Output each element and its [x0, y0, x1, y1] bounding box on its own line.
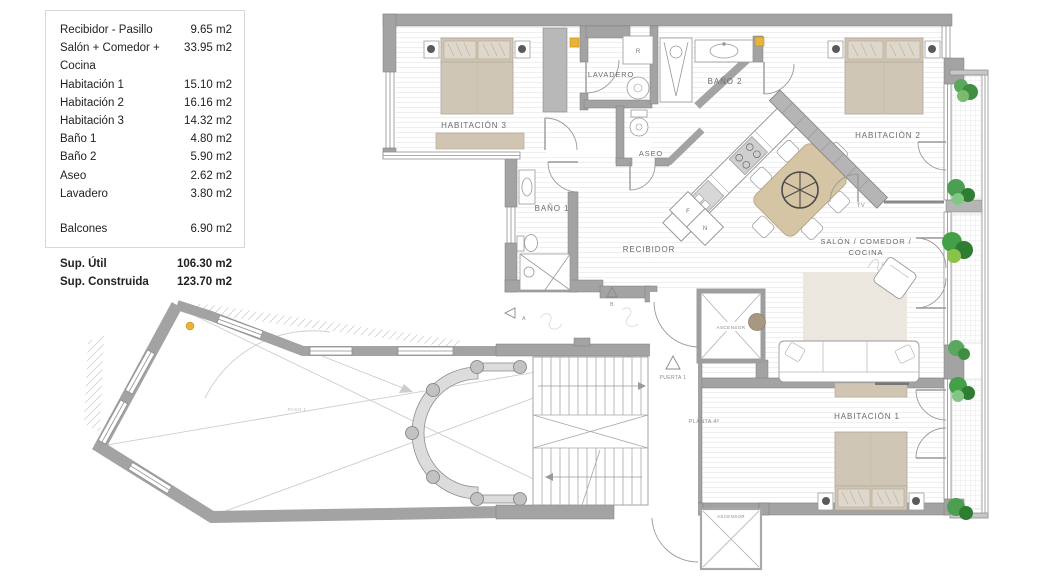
corner-marker-yellow: [186, 322, 194, 330]
double-bed-hab2: [828, 38, 940, 114]
floorplan-page: { "legend": { "rows": [ {"label":"Recibi…: [0, 0, 1038, 578]
label-aseo: ASEO: [639, 149, 663, 158]
elevator-label: ASCENSOR: [717, 325, 746, 330]
dresser-hab1: [835, 383, 907, 397]
elevator-label: ASCENSOR: [717, 514, 745, 519]
sofa: [779, 341, 919, 382]
label-recibidor: RECIBIDOR: [623, 245, 676, 254]
staircase: [533, 357, 648, 505]
marker-a-label: A: [522, 316, 526, 322]
label-salon-line1: SALÓN / COMEDOR /: [820, 237, 911, 246]
planta-label: PLANTA 4ª: [689, 419, 720, 425]
label-salon-line2: COCINA: [849, 248, 884, 257]
puerta1-label: PUERTA 1: [660, 375, 687, 381]
terrace-label: PASO 1: [288, 407, 307, 412]
label-habitacion1: HABITACIÓN 1: [834, 412, 900, 421]
side-table: [749, 314, 766, 331]
letter-f: F: [686, 209, 690, 215]
curved-colonnade: [406, 361, 527, 506]
letter-n: N: [703, 226, 707, 232]
label-lavadero: LAVADERO: [588, 70, 634, 79]
landing-corridor: [650, 292, 698, 522]
label-tv: TV: [857, 203, 865, 209]
label-habitacion2: HABITACIÓN 2: [855, 131, 921, 140]
letter-r: R: [636, 49, 641, 55]
label-bano1: BAÑO 1: [535, 204, 570, 213]
floor-plan: PASO 1: [0, 0, 1038, 578]
elevator-shaft-lower: ASCENSOR: [701, 509, 761, 569]
aseo-toilet: [630, 110, 648, 136]
label-habitacion3: HABITACIÓN 3: [441, 121, 507, 130]
marker-b-label: B: [610, 302, 614, 308]
dresser-hab3: [436, 133, 524, 149]
label-bano2: BAÑO 2: [708, 77, 743, 86]
